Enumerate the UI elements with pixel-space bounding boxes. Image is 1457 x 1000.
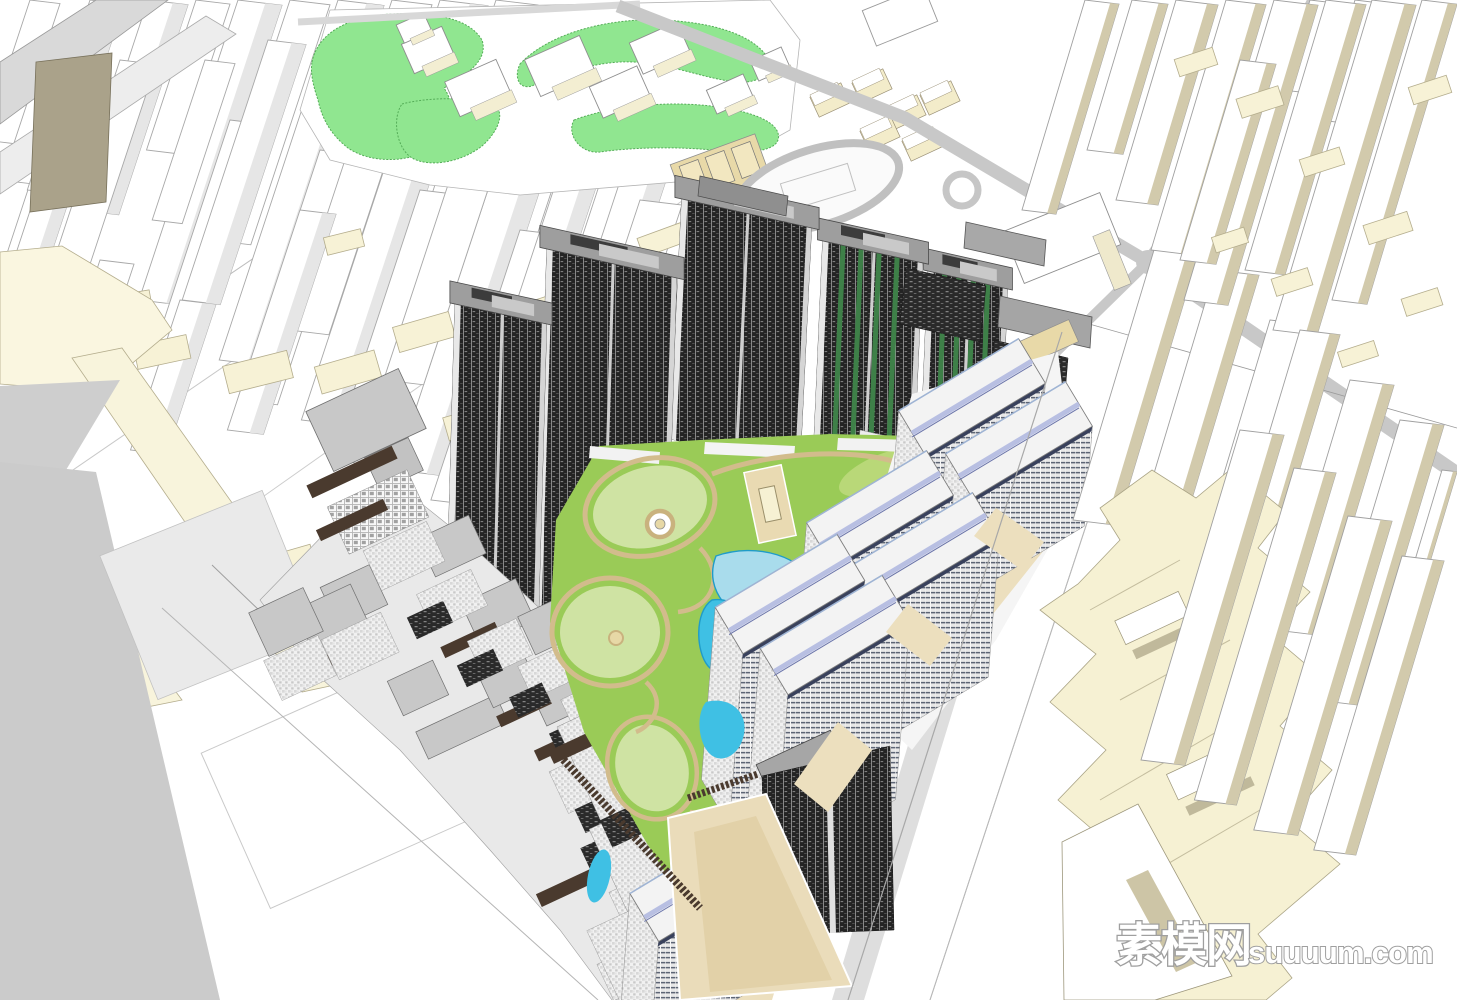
svg-text:suuuum.com: suuuum.com [1248,935,1433,970]
svg-text:素模网: 素模网 [1116,919,1251,971]
